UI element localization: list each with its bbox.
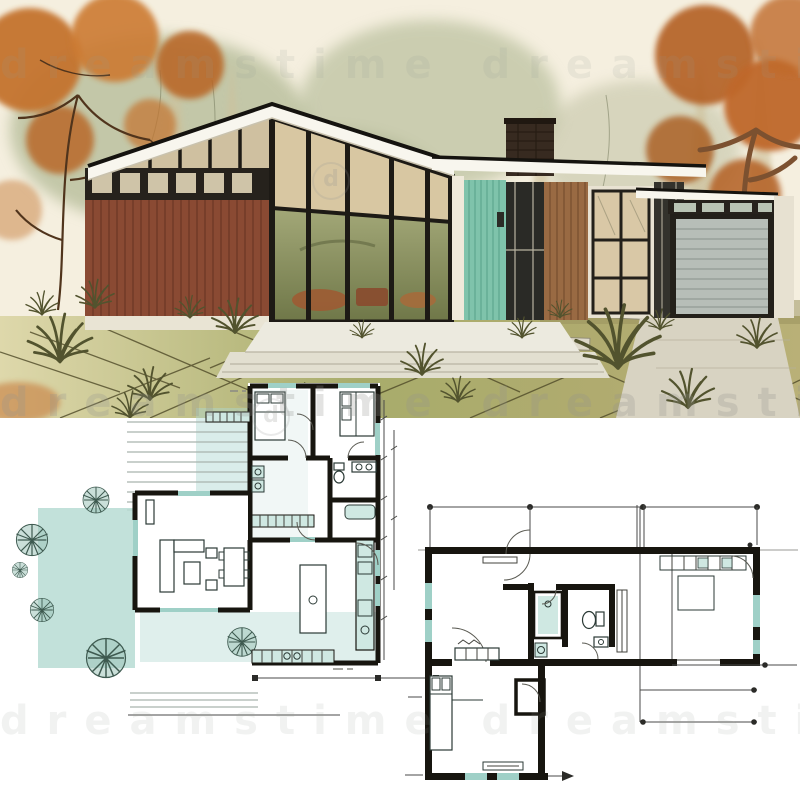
right-plan-walls	[425, 547, 760, 780]
artwork	[0, 0, 800, 800]
house-illustration	[0, 0, 800, 800]
stock-illustration-canvas: dreamstime dreamstime dreamstime dreamst…	[0, 0, 800, 800]
left-floor-plan	[12, 383, 439, 715]
garage-door	[676, 219, 768, 314]
right-plan-dimensions	[405, 662, 797, 781]
teal-patio	[38, 508, 135, 668]
entry-details	[483, 530, 530, 580]
right-floor-plan	[405, 504, 798, 781]
teal-siding	[464, 180, 506, 320]
rust-siding	[85, 200, 272, 318]
entry-glass	[506, 182, 544, 320]
